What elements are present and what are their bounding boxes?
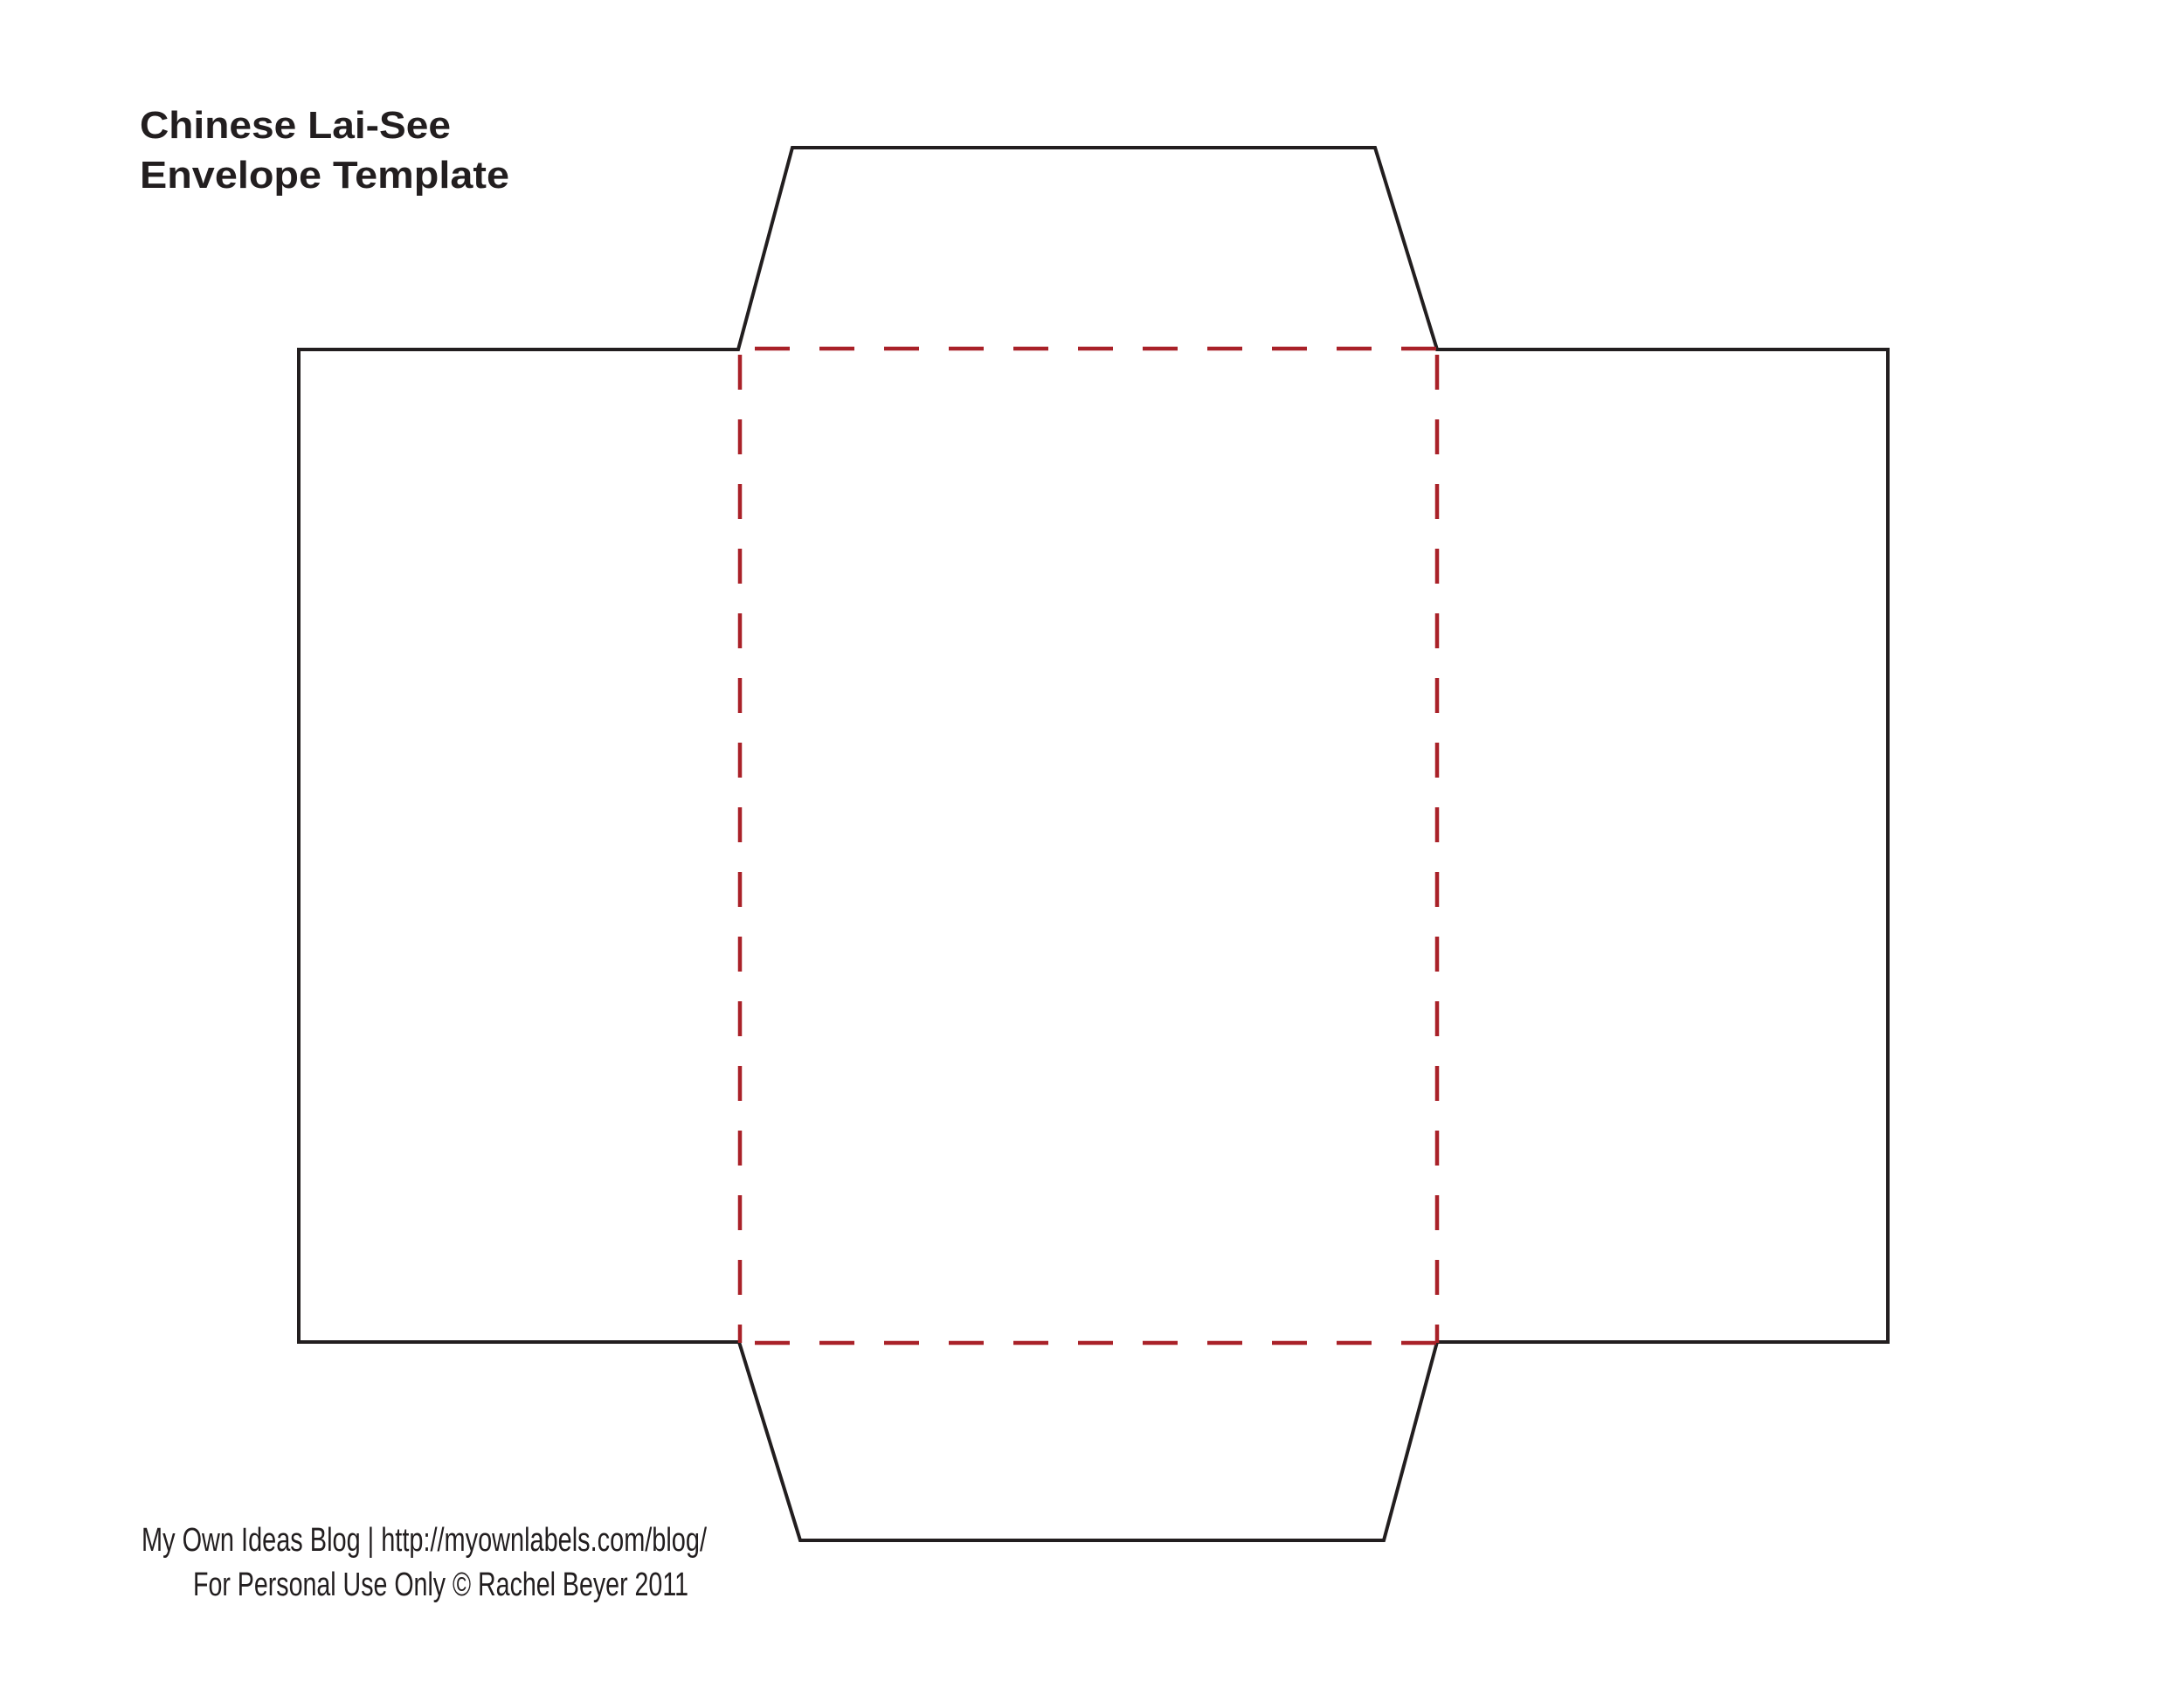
- svg-text:Envelope Template: Envelope Template: [140, 155, 509, 197]
- svg-text:For Personal Use Only © Rachel: For Personal Use Only © Rachel Beyer 201…: [193, 1566, 688, 1603]
- svg-text:My Own Ideas Blog | http://myo: My Own Ideas Blog | http://myownlabels.c…: [142, 1521, 707, 1559]
- svg-text:Chinese Lai-See: Chinese Lai-See: [140, 105, 451, 147]
